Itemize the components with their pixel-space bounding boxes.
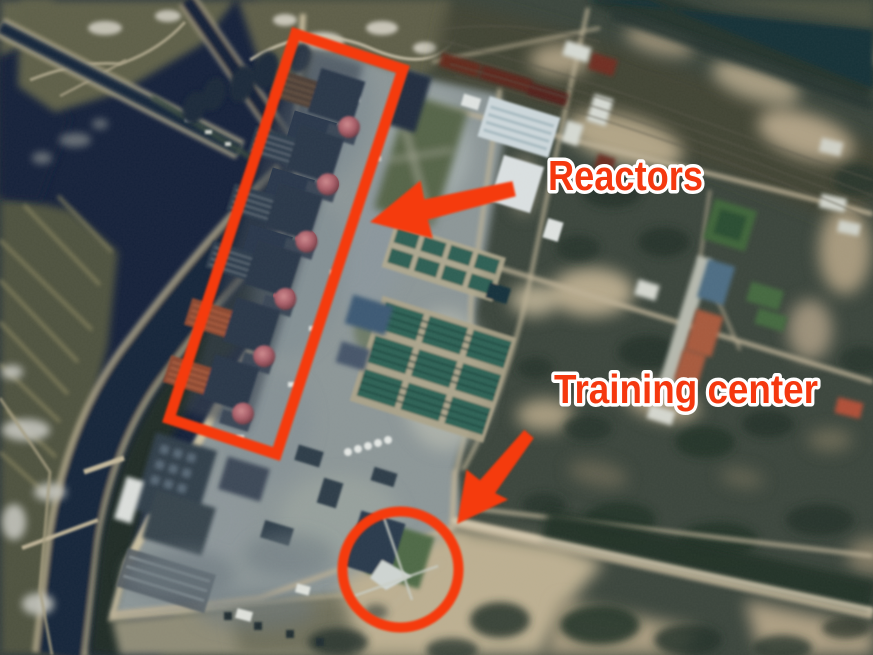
svg-text:Reactors: Reactors [548,152,703,199]
svg-text:Training center: Training center [554,366,818,412]
